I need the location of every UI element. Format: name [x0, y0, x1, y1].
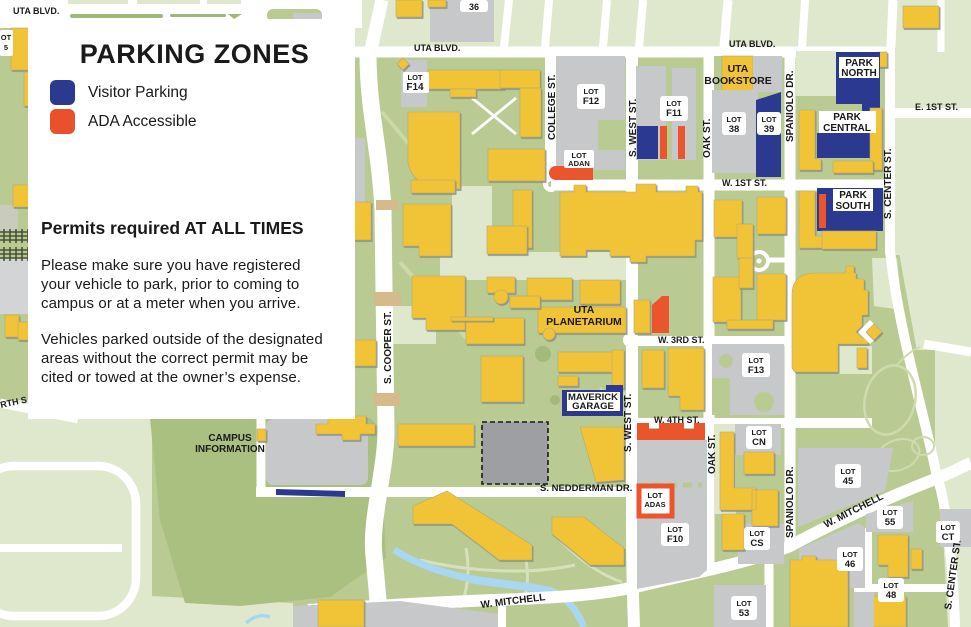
svg-text:F14: F14	[406, 82, 424, 93]
svg-text:LOT: LOT	[668, 525, 683, 534]
svg-text:53: 53	[739, 608, 750, 619]
svg-text:PARK: PARK	[833, 112, 861, 123]
svg-text:W. 4TH ST.: W. 4TH ST.	[654, 415, 700, 425]
svg-text:UTA: UTA	[728, 63, 749, 75]
svg-text:LOT: LOT	[667, 99, 682, 108]
svg-text:GARAGE: GARAGE	[572, 401, 614, 412]
svg-text:F12: F12	[583, 96, 599, 107]
svg-text:CAMPUS: CAMPUS	[208, 433, 252, 444]
svg-text:46: 46	[845, 559, 856, 570]
svg-text:LOT: LOT	[749, 356, 764, 365]
svg-text:OAK ST.: OAK ST.	[702, 118, 713, 158]
svg-text:LOT: LOT	[584, 87, 599, 96]
svg-text:OAK ST.: OAK ST.	[707, 434, 718, 474]
svg-text:SOUTH: SOUTH	[836, 201, 871, 212]
svg-text:ADAS: ADAS	[644, 500, 665, 509]
svg-text:UTA: UTA	[574, 304, 595, 316]
svg-text:LOT: LOT	[841, 467, 856, 476]
svg-text:F11: F11	[666, 108, 683, 119]
svg-text:LOT: LOT	[648, 491, 663, 500]
svg-text:38: 38	[729, 124, 740, 135]
svg-text:W. 1ST ST.: W. 1ST ST.	[722, 178, 767, 188]
svg-text:UTA BLVD.: UTA BLVD.	[729, 39, 775, 49]
svg-text:39: 39	[764, 124, 775, 135]
svg-text:OT: OT	[1, 33, 12, 42]
svg-text:W. 3RD ST.: W. 3RD ST.	[658, 335, 705, 345]
svg-text:55: 55	[885, 517, 896, 528]
svg-text:LOT: LOT	[843, 550, 858, 559]
svg-text:45: 45	[843, 476, 854, 487]
svg-text:48: 48	[886, 590, 897, 601]
svg-text:LOT: LOT	[727, 115, 742, 124]
svg-text:S. COOPER ST.: S. COOPER ST.	[383, 311, 394, 384]
svg-text:E. 1ST ST.: E. 1ST ST.	[915, 102, 958, 112]
svg-text:CENTRAL: CENTRAL	[823, 123, 871, 134]
svg-text:ADAN: ADAN	[568, 159, 590, 168]
svg-text:S. CENTER ST.: S. CENTER ST.	[883, 148, 894, 219]
svg-text:CT: CT	[942, 532, 955, 543]
svg-text:LOT: LOT	[737, 599, 752, 608]
svg-text:S. NEDDERMAN DR.: S. NEDDERMAN DR.	[540, 483, 632, 494]
svg-text:PARK: PARK	[839, 190, 867, 201]
svg-text:CS: CS	[750, 538, 763, 549]
svg-text:INFORMATION: INFORMATION	[195, 444, 265, 455]
svg-text:F13: F13	[748, 365, 764, 376]
svg-text:NORTH: NORTH	[841, 68, 877, 79]
svg-text:LOT: LOT	[762, 115, 777, 124]
svg-text:SPANIOLO DR.: SPANIOLO DR.	[785, 466, 796, 538]
svg-text:CN: CN	[752, 437, 766, 448]
svg-text:LOT: LOT	[408, 73, 423, 82]
svg-text:F10: F10	[667, 534, 683, 545]
svg-text:5: 5	[4, 43, 8, 52]
svg-text:UTA BLVD.: UTA BLVD.	[414, 43, 460, 53]
svg-text:PLANETARIUM: PLANETARIUM	[546, 316, 622, 328]
svg-text:UTA BLVD.: UTA BLVD.	[13, 6, 59, 16]
svg-text:LOT: LOT	[752, 428, 767, 437]
svg-text:LOT: LOT	[941, 523, 956, 532]
svg-text:LOT: LOT	[883, 508, 898, 517]
svg-text:COLLEGE ST.: COLLEGE ST.	[547, 74, 558, 140]
svg-text:LOT: LOT	[884, 581, 899, 590]
svg-text:S. WEST ST.: S. WEST ST.	[623, 393, 634, 452]
svg-text:SPANIOLO DR.: SPANIOLO DR.	[785, 70, 796, 142]
svg-text:S. WEST ST.: S. WEST ST.	[628, 98, 639, 157]
svg-text:BOOKSTORE: BOOKSTORE	[704, 75, 771, 87]
svg-text:36: 36	[469, 2, 479, 12]
svg-text:LOT: LOT	[750, 529, 765, 538]
